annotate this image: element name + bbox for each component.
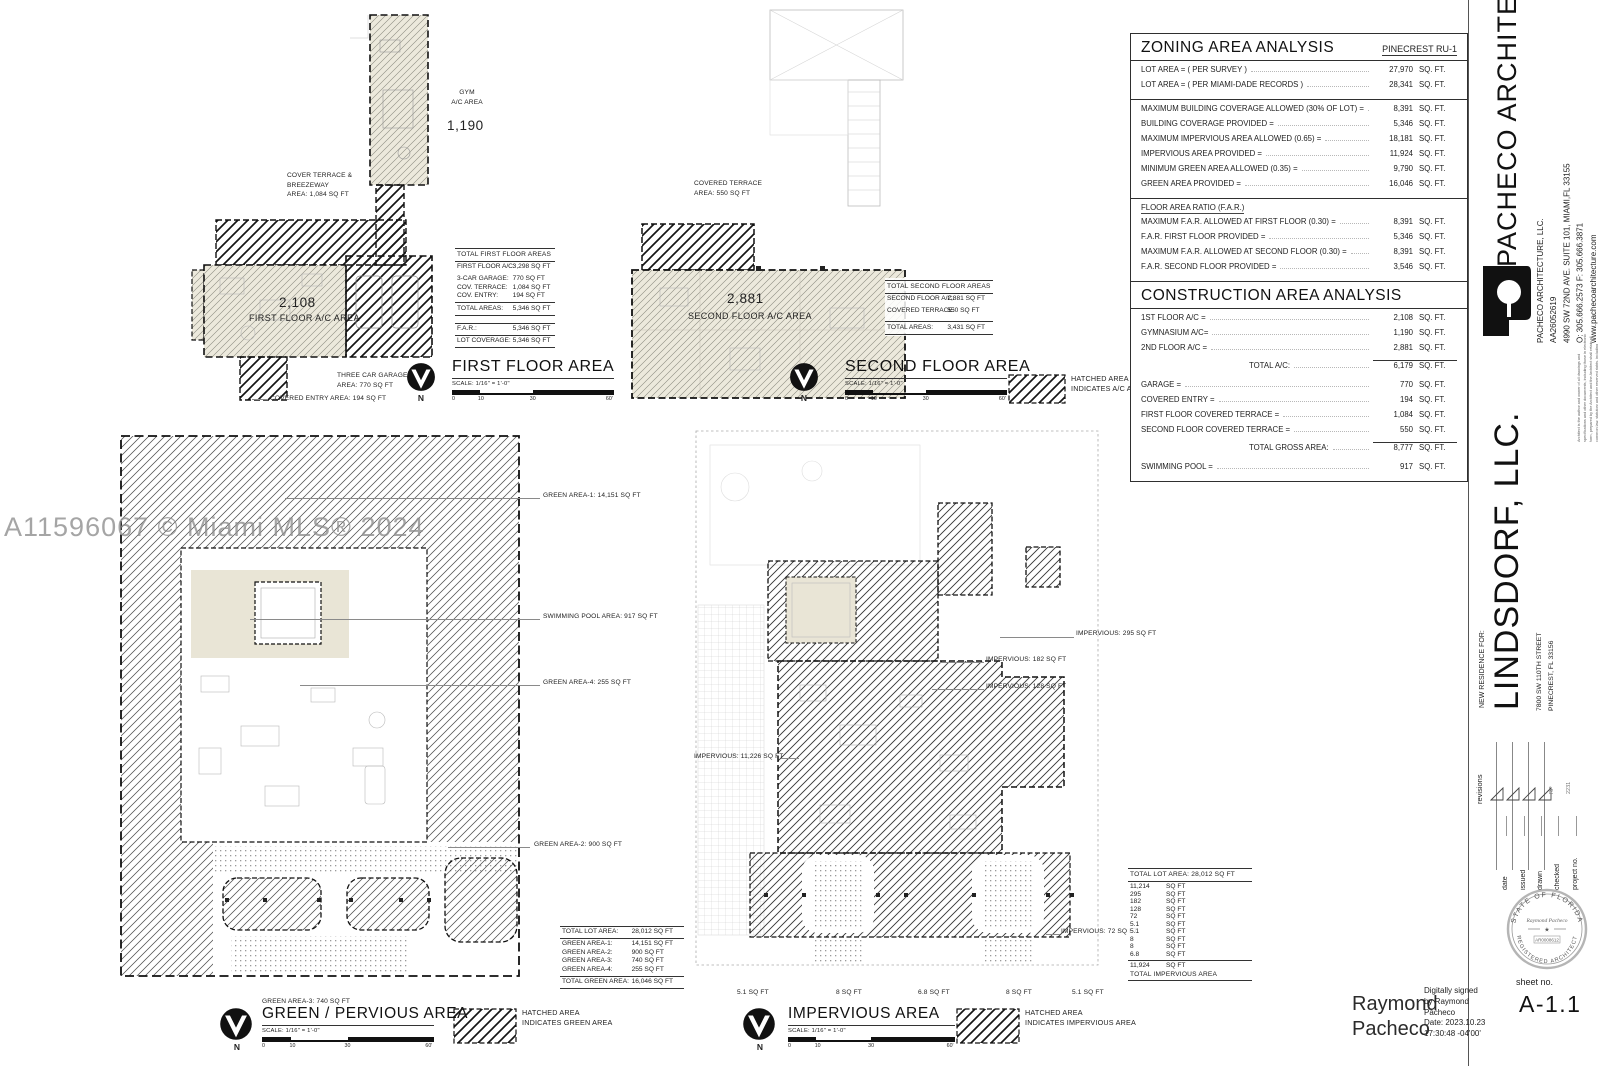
signature-details: Digitally signed by Raymond Pacheco Date…: [1424, 986, 1485, 1040]
table-row: FIRST FLOOR COVERED TERRACE =1,084SQ. FT…: [1131, 410, 1467, 425]
zoning-district: PINECREST RU-1: [1382, 44, 1457, 56]
sheet-number: A-1.1: [1519, 991, 1581, 1018]
titleblock-frame-line: [1468, 0, 1469, 1066]
field-tick: [1506, 816, 1507, 836]
table-row: IMPERVIOUS AREA PROVIDED =11,924SQ. FT.: [1131, 149, 1467, 164]
project-no-field-label: project no.: [1572, 838, 1579, 890]
green-area4-label: GREEN AREA-4: 255 SQ FT: [543, 678, 631, 688]
table-row: COV. TERRACE:1,084 SQ FT: [455, 284, 555, 292]
field-tick: [1524, 816, 1525, 836]
table-row: 11,214SQ FT: [1128, 883, 1252, 891]
hatch-swatch-icon: [453, 1008, 517, 1044]
leader-line: [448, 847, 530, 848]
plan-title: SECOND FLOOR AREA: [845, 358, 1007, 379]
leader-line: [1000, 637, 1074, 638]
green-hatch-legend: HATCHED AREAINDICATES GREEN AREA: [453, 1008, 613, 1044]
table-row: F.A.R. SECOND FLOOR PROVIDED =3,546SQ. F…: [1131, 262, 1467, 277]
table-row: COV. ENTRY:194 SQ FT: [455, 292, 555, 300]
svg-text:★: ★: [1544, 927, 1549, 934]
issued-field-label: issued: [1520, 838, 1527, 890]
date-field-label: date: [1502, 838, 1509, 890]
drawn-value: RP: [1549, 778, 1555, 794]
firm-logo: [1479, 266, 1531, 336]
checked-field-label: checked: [1554, 838, 1561, 890]
project-address: 7800 SW 110TH STREET PINECREST, FL 33156: [1534, 616, 1558, 711]
impervious-title-block: IMPERVIOUS AREA SCALE: 1/16" = 1'-0" 010…: [788, 1005, 955, 1050]
second-terrace-label: COVERED TERRACE AREA: 550 SQ FT: [694, 179, 762, 198]
impervious-strip-shape: [938, 503, 992, 595]
table-row: 5.1SQ FT: [1128, 921, 1252, 929]
impervious-callout: 5.1 SQ FT: [737, 988, 769, 998]
revision-line: [1512, 742, 1513, 870]
green-area1-label: GREEN AREA-1: 14,151 SQ FT: [543, 491, 641, 501]
plan-scale-note: SCALE: 1/16" = 1'-0": [845, 381, 1007, 387]
table-row: F.A.R. FIRST FLOOR PROVIDED =5,346SQ. FT…: [1131, 232, 1467, 247]
table-row: 3-CAR GARAGE:770 SQ FT: [455, 275, 555, 283]
total-ac-row: TOTAL A/C:6,179SQ. FT.: [1131, 360, 1467, 375]
leader-line: [932, 689, 984, 690]
first-floor-title-block: FIRST FLOOR AREA SCALE: 1/16" = 1'-0" 01…: [452, 358, 614, 403]
swimming-pool-row: SWIMMING POOL =917SQ. FT.: [1131, 462, 1467, 477]
impervious-72-label: IMPERVIOUS: 72 SQ FT: [1061, 927, 1138, 937]
mls-watermark: A11596067 © Miami MLS® 2024: [4, 512, 425, 543]
table-row: 8SQ FT: [1128, 936, 1252, 944]
table-row: 182SQ FT: [1128, 898, 1252, 906]
table-total-row: TOTAL AREAS:5,346 SQ FT: [455, 305, 555, 313]
total-gross-row: TOTAL GROSS AREA:8,777SQ. FT.: [1131, 442, 1467, 457]
impervious-182-label: IMPERVIOUS: 182 SQ FT: [986, 655, 1066, 665]
impervious-128-label: IMPERVIOUS: 128 SQ FT: [986, 682, 1066, 692]
field-tick: [1541, 816, 1542, 836]
table-row: SECOND FLOOR COVERED TERRACE =550SQ. FT.: [1131, 425, 1467, 440]
first-floor-area-table: TOTAL FIRST FLOOR AREAS FIRST FLOOR A/C:…: [455, 246, 555, 350]
second-floor-ac-value: 2,881: [727, 289, 764, 309]
plan-title: GREEN / PERVIOUS AREA: [262, 1005, 434, 1026]
table-row: LOT AREA = ( PER SURVEY )27,970SQ. FT.: [1131, 65, 1467, 80]
gym-area-value: 1,190: [447, 116, 484, 136]
table-row: 5.1SQ FT: [1128, 928, 1252, 936]
impervious-11226-label: IMPERVIOUS: 11,226 SQ FT: [694, 752, 783, 762]
table-row: LOT COVERAGE:5,346 SQ FT: [455, 337, 555, 345]
table-row: GREEN AREA-2:900 SQ FT: [560, 949, 684, 957]
impervious-295-label: IMPERVIOUS: 295 SQ FT: [1076, 629, 1156, 639]
green-area2-label: GREEN AREA-2: 900 SQ FT: [534, 840, 622, 850]
garage-shape: [346, 256, 432, 357]
table-row: 72SQ FT: [1128, 913, 1252, 921]
leader-line: [300, 685, 540, 686]
scale-ticks: 010 3060': [845, 395, 1007, 403]
cover-terrace-label: COVER TERRACE & BREEZEWAY AREA: 1,084 SQ…: [287, 171, 352, 200]
field-tick: [1558, 816, 1559, 836]
first-floor-ac-label: FIRST FLOOR A/C AREA: [249, 312, 360, 325]
revision-line: [1528, 742, 1529, 870]
table-row: 2ND FLOOR A/C =2,881SQ. FT.: [1131, 343, 1467, 358]
table-header: TOTAL FIRST FLOOR AREAS: [455, 250, 555, 259]
table-row: 128SQ FT: [1128, 906, 1252, 914]
impervious-callout: 8 SQ FT: [836, 988, 862, 998]
second-floor-ac-label: SECOND FLOOR A/C AREA: [688, 310, 812, 323]
second-floor-area-table: TOTAL SECOND FLOOR AREAS SECOND FLOOR A/…: [885, 278, 993, 336]
svg-text:AR0008612: AR0008612: [1535, 938, 1559, 943]
legend-text: HATCHED AREAINDICATES IMPERVIOUS AREA: [1025, 1008, 1136, 1028]
first-floor-ac-value: 2,108: [279, 293, 316, 313]
table-row: 295SQ FT: [1128, 891, 1252, 899]
table-total-row: TOTAL GREEN AREA:16,046 SQ FT: [560, 978, 684, 986]
green-title-block: GREEN / PERVIOUS AREA SCALE: 1/16" = 1'-…: [262, 1005, 434, 1050]
table-row: COVERED TERRACE:550 SQ FT: [885, 307, 993, 315]
drawn-field-label: drawn: [1537, 838, 1544, 890]
zoning-analysis-table: ZONING AREA ANALYSIS PINECREST RU-1 LOT …: [1130, 33, 1468, 482]
architect-seal: STATE OF FLORIDA REGISTERED ARCHITECT Ra…: [1506, 888, 1588, 970]
table-row: FIRST FLOOR A/C:3,298 SQ FT: [455, 263, 555, 271]
table-row: 8SQ FT: [1128, 943, 1252, 951]
first-floor-plan-drawing: [190, 8, 450, 408]
ac-hatch-legend: HATCHED AREAINDICATES A/C AREA: [1008, 374, 1147, 404]
table-total-label: TOTAL IMPERVIOUS AREA: [1128, 970, 1252, 979]
leader-line: [285, 498, 540, 499]
impervious-callout: 6.8 SQ FT: [918, 988, 950, 998]
gym-area-label: GYM A/C AREA: [444, 88, 490, 107]
covered-entry-label: COVERED ENTRY AREA: 194 SQ FT: [270, 394, 386, 404]
table-row: MAXIMUM F.A.R. ALLOWED AT FIRST FLOOR (0…: [1131, 217, 1467, 232]
svg-text:Raymond Pacheco: Raymond Pacheco: [1525, 918, 1567, 924]
zoning-title: ZONING AREA ANALYSIS: [1141, 39, 1334, 57]
table-row: SECOND FLOOR A/C:2,881 SQ FT: [885, 295, 993, 303]
table-row: 6.8SQ FT: [1128, 951, 1252, 959]
client-name: LINDSDORF, LLC.: [1488, 398, 1527, 710]
north-arrow-icon: N: [219, 1007, 255, 1052]
far-section-header: FLOOR AREA RATIO (F.A.R.): [1131, 203, 1467, 217]
north-arrow-icon: N: [742, 1007, 778, 1052]
plan-scale-note: SCALE: 1/16" = 1'-0": [788, 1028, 955, 1034]
table-row: GREEN AREA-4:255 SQ FT: [560, 966, 684, 974]
impervious-callout: 5.1 SQ FT: [1072, 988, 1104, 998]
leader-line: [781, 758, 799, 759]
table-header: TOTAL SECOND FLOOR AREAS: [885, 282, 993, 291]
sheet-no-label: sheet no.: [1516, 977, 1553, 987]
table-row: F.A.R.:5,346 SQ FT: [455, 325, 555, 333]
pool-area-label: SWIMMING POOL AREA: 917 SQ FT: [543, 612, 658, 622]
scale-ticks: 010 3060': [452, 395, 614, 403]
impervious-area-table: TOTAL LOT AREA: 28,012 SQ FT 11,214SQ FT…: [1128, 866, 1252, 983]
table-row: LOT AREA = ( PER MIAMI-DADE RECORDS )28,…: [1131, 80, 1467, 95]
firm-contact-info: PACHECO ARCHITECTURE, LLC. AA26052619 49…: [1534, 88, 1599, 343]
table-row: GREEN AREA PROVIDED =16,046SQ. FT.: [1131, 179, 1467, 194]
hatch-swatch-icon: [1008, 374, 1066, 404]
impervious-plan-drawing: [690, 425, 1110, 985]
project-no-value: 2231: [1566, 770, 1572, 794]
green-island-shape: [223, 878, 321, 930]
table-row: MINIMUM GREEN AREA ALLOWED (0.35) =9,790…: [1131, 164, 1467, 179]
table-row: 1ST FLOOR A/C =2,108SQ. FT.: [1131, 313, 1467, 328]
leader-line: [1046, 934, 1060, 935]
drawing-sheet: A11596067 © Miami MLS® 2024 GYM A/C AREA…: [0, 0, 1599, 1066]
leader-line: [252, 399, 268, 400]
table-row: GARAGE =770SQ. FT.: [1131, 380, 1467, 395]
table-header: TOTAL LOT AREA: 28,012 SQ FT: [1128, 870, 1252, 879]
firm-name: PACHECO ARCHITECTURE: [1492, 22, 1523, 267]
revision-line: [1496, 742, 1497, 870]
table-row: GREEN AREA-3:740 SQ FT: [560, 957, 684, 965]
field-tick: [1576, 816, 1577, 836]
scale-ticks: 010 3060': [262, 1042, 434, 1050]
table-row: MAXIMUM IMPERVIOUS AREA ALLOWED (0.65) =…: [1131, 134, 1467, 149]
construction-title: CONSTRUCTION AREA ANALYSIS: [1131, 282, 1467, 308]
swimming-pool-shape: [255, 582, 321, 644]
garage-label: THREE CAR GARAGE AREA: 770 SQ FT: [337, 371, 408, 390]
plan-scale-note: SCALE: 1/16" = 1'-0": [262, 1028, 434, 1034]
revisions-label: revisions: [1475, 742, 1484, 804]
second-floor-terrace-shape: [642, 224, 754, 270]
leader-line: [250, 619, 540, 620]
legend-text: HATCHED AREAINDICATES GREEN AREA: [522, 1008, 613, 1028]
north-arrow-icon: N: [406, 362, 436, 403]
revision-line: [1544, 742, 1545, 870]
scale-ticks: 010 3060': [788, 1042, 955, 1050]
table-row: GREEN AREA-1:14,151 SQ FT: [560, 940, 684, 948]
table-total-row: 11,924SQ FT: [1128, 962, 1252, 970]
client-intro-label: NEW RESIDENCE FOR:: [1479, 612, 1486, 708]
copyright-disclaimer: Architect is the author and owner of all…: [1576, 330, 1598, 442]
second-floor-title-block: SECOND FLOOR AREA SCALE: 1/16" = 1'-0" 0…: [845, 358, 1007, 403]
table-header: TOTAL LOT AREA:28,012 SQ FT: [560, 928, 684, 936]
leader-line: [940, 662, 984, 663]
table-row: GYMNASIUM A/C=1,190SQ. FT.: [1131, 328, 1467, 343]
plan-title: FIRST FLOOR AREA: [452, 358, 614, 379]
impervious-callout: 8 SQ FT: [1006, 988, 1032, 998]
second-floor-plan-drawing: [620, 8, 910, 408]
table-row: MAXIMUM BUILDING COVERAGE ALLOWED (30% O…: [1131, 104, 1467, 119]
impervious-hatch-legend: HATCHED AREAINDICATES IMPERVIOUS AREA: [956, 1008, 1136, 1044]
table-row: MAXIMUM F.A.R. ALLOWED AT SECOND FLOOR (…: [1131, 247, 1467, 262]
north-arrow-icon: N: [789, 362, 819, 403]
table-total-row: TOTAL AREAS:3,431 SQ FT: [885, 324, 993, 332]
plan-title: IMPERVIOUS AREA: [788, 1005, 955, 1026]
hatch-swatch-icon: [956, 1008, 1020, 1044]
plan-scale-note: SCALE: 1/16" = 1'-0": [452, 381, 614, 387]
table-row: COVERED ENTRY =194SQ. FT.: [1131, 395, 1467, 410]
green-area-table: TOTAL LOT AREA:28,012 SQ FT GREEN AREA-1…: [560, 924, 684, 990]
table-row: BUILDING COVERAGE PROVIDED =5,346SQ. FT.: [1131, 119, 1467, 134]
